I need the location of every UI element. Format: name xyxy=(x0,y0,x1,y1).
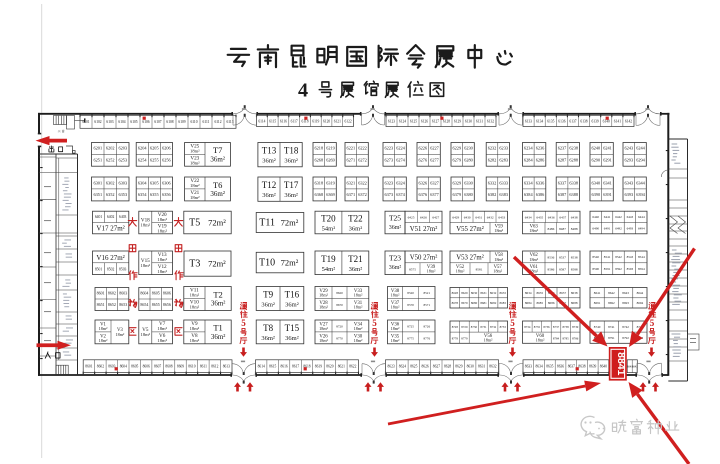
svg-text:72m²: 72m² xyxy=(281,258,299,268)
svg-text:6383: 6383 xyxy=(499,192,508,197)
svg-text:6139: 6139 xyxy=(592,119,599,123)
svg-text:6401: 6401 xyxy=(95,215,103,219)
svg-text:18m²: 18m² xyxy=(536,337,545,342)
svg-text:6134: 6134 xyxy=(536,119,543,123)
svg-text:8625: 8625 xyxy=(410,365,417,369)
svg-text:V50 27m²: V50 27m² xyxy=(410,255,438,262)
svg-text:18m²: 18m² xyxy=(354,305,363,310)
svg-text:8542: 8542 xyxy=(615,255,622,259)
svg-text:18m²: 18m² xyxy=(319,326,328,331)
svg-text:6368: 6368 xyxy=(315,192,324,197)
svg-text:36m²: 36m² xyxy=(210,156,225,164)
svg-text:8570: 8570 xyxy=(407,303,414,307)
svg-text:6334: 6334 xyxy=(524,180,533,185)
svg-text:6431: 6431 xyxy=(475,216,482,220)
svg-text:8653: 8653 xyxy=(119,302,127,307)
svg-text:6323: 6323 xyxy=(385,180,394,185)
svg-text:18m²: 18m² xyxy=(190,195,200,200)
svg-text:6251: 6251 xyxy=(94,158,103,163)
svg-text:T3: T3 xyxy=(189,259,200,270)
svg-text:18m²: 18m² xyxy=(529,228,538,233)
svg-text:6433: 6433 xyxy=(498,216,505,220)
svg-text:6229: 6229 xyxy=(453,146,462,151)
svg-text:8609: 8609 xyxy=(177,365,184,369)
svg-text:6444: 6444 xyxy=(638,215,645,219)
svg-text:6432: 6432 xyxy=(487,216,494,220)
svg-text:8735: 8735 xyxy=(534,325,541,329)
svg-text:6303: 6303 xyxy=(119,180,128,185)
svg-text:8638: 8638 xyxy=(578,365,585,369)
svg-text:18m²: 18m² xyxy=(391,326,400,331)
svg-text:6115: 6115 xyxy=(269,119,276,123)
svg-text:6490: 6490 xyxy=(592,226,599,230)
svg-text:T2: T2 xyxy=(213,289,222,299)
svg-text:6117: 6117 xyxy=(291,119,298,123)
svg-text:6283: 6283 xyxy=(499,158,508,163)
svg-text:18m²: 18m² xyxy=(157,269,167,274)
svg-text:54m²: 54m² xyxy=(322,266,336,273)
svg-text:6124: 6124 xyxy=(399,119,406,123)
svg-text:6123: 6123 xyxy=(388,119,395,123)
svg-text:6111: 6111 xyxy=(203,120,210,124)
svg-text:8630: 8630 xyxy=(471,291,478,295)
svg-text:6369: 6369 xyxy=(326,192,335,197)
svg-text:6116: 6116 xyxy=(280,119,287,123)
svg-text:6356: 6356 xyxy=(162,192,171,197)
svg-text:6443: 6443 xyxy=(627,215,634,219)
svg-text:6286: 6286 xyxy=(536,158,545,163)
svg-text:6353: 6353 xyxy=(119,192,128,197)
svg-text:8737: 8737 xyxy=(553,325,560,329)
svg-text:8607: 8607 xyxy=(154,365,161,369)
svg-text:8620: 8620 xyxy=(326,365,333,369)
svg-text:36m²: 36m² xyxy=(262,192,276,199)
svg-text:6282: 6282 xyxy=(488,158,497,163)
svg-text:6280: 6280 xyxy=(464,158,473,163)
svg-text:18m²: 18m² xyxy=(190,183,200,188)
svg-text:T7: T7 xyxy=(213,145,222,155)
svg-text:8730: 8730 xyxy=(471,325,478,329)
svg-text:8640: 8640 xyxy=(600,365,607,369)
svg-text:6218: 6218 xyxy=(315,146,324,151)
svg-text:8637: 8637 xyxy=(560,291,567,295)
svg-text:6107: 6107 xyxy=(154,120,161,124)
svg-text:8629: 8629 xyxy=(455,365,462,369)
svg-text:T17: T17 xyxy=(284,180,299,190)
svg-text:6491: 6491 xyxy=(604,226,611,230)
svg-text:72m²: 72m² xyxy=(208,218,226,228)
svg-text:8616: 8616 xyxy=(281,365,288,369)
svg-text:8632: 8632 xyxy=(489,365,496,369)
svg-text:6304: 6304 xyxy=(138,180,147,185)
svg-text:6344: 6344 xyxy=(636,180,645,185)
svg-text:6205: 6205 xyxy=(150,146,159,151)
svg-text:8632: 8632 xyxy=(490,291,497,295)
svg-text:6110: 6110 xyxy=(190,120,197,124)
svg-text:6386: 6386 xyxy=(536,192,545,197)
svg-text:6272: 6272 xyxy=(358,158,367,163)
svg-text:36m²: 36m² xyxy=(284,158,298,165)
svg-text:8587: 8587 xyxy=(559,267,566,271)
svg-text:8590: 8590 xyxy=(592,267,599,271)
svg-text:18m²: 18m² xyxy=(190,305,200,310)
svg-text:6430: 6430 xyxy=(464,216,471,220)
svg-text:6222: 6222 xyxy=(358,146,367,151)
svg-text:6321: 6321 xyxy=(347,180,356,185)
svg-text:8770: 8770 xyxy=(336,337,343,341)
svg-text:36m²: 36m² xyxy=(284,192,298,199)
svg-text:8720: 8720 xyxy=(336,325,343,329)
svg-text:8741: 8741 xyxy=(608,325,615,329)
svg-text:8601: 8601 xyxy=(97,291,105,296)
svg-text:8683: 8683 xyxy=(500,301,507,305)
svg-text:6269: 6269 xyxy=(326,158,335,163)
svg-text:18m²: 18m² xyxy=(99,326,108,331)
svg-text:6287: 6287 xyxy=(558,158,567,163)
svg-text:8615: 8615 xyxy=(269,365,276,369)
svg-text:6403: 6403 xyxy=(119,215,127,219)
svg-text:18m²: 18m² xyxy=(427,268,436,273)
svg-text:6343: 6343 xyxy=(625,180,634,185)
svg-text:8606: 8606 xyxy=(143,365,150,369)
svg-text:8602: 8602 xyxy=(97,365,104,369)
svg-text:6494: 6494 xyxy=(638,226,645,230)
svg-text:6120: 6120 xyxy=(323,119,330,123)
svg-text:8544: 8544 xyxy=(638,255,645,259)
svg-text:6326: 6326 xyxy=(419,180,428,185)
svg-text:6333: 6333 xyxy=(499,180,508,185)
svg-text:6388: 6388 xyxy=(569,192,578,197)
svg-text:18m²: 18m² xyxy=(157,338,167,343)
svg-text:6318: 6318 xyxy=(315,180,324,185)
svg-text:8685: 8685 xyxy=(537,301,544,305)
svg-text:8655: 8655 xyxy=(152,302,160,307)
svg-text:18m²: 18m² xyxy=(190,338,200,343)
svg-text:18m²: 18m² xyxy=(391,338,400,343)
svg-text:6105: 6105 xyxy=(130,120,137,124)
svg-text:6109: 6109 xyxy=(178,120,185,124)
svg-text:6108: 6108 xyxy=(166,120,173,124)
svg-text:8692: 8692 xyxy=(608,301,615,305)
svg-text:8628: 8628 xyxy=(452,291,459,295)
svg-text:6425: 6425 xyxy=(408,216,415,220)
svg-text:6341: 6341 xyxy=(603,180,612,185)
svg-text:8670: 8670 xyxy=(336,303,343,307)
svg-text:T20: T20 xyxy=(321,214,336,224)
svg-text:8486: 8486 xyxy=(548,227,555,231)
svg-text:8603: 8603 xyxy=(119,291,127,296)
svg-text:6268: 6268 xyxy=(315,158,324,163)
svg-text:8694: 8694 xyxy=(637,301,644,305)
svg-text:36m²: 36m² xyxy=(261,302,275,309)
svg-text:36m²: 36m² xyxy=(349,226,363,233)
svg-text:6203: 6203 xyxy=(119,146,128,151)
svg-text:6387: 6387 xyxy=(558,192,567,197)
svg-text:6253: 6253 xyxy=(119,158,128,163)
svg-text:8604: 8604 xyxy=(140,291,148,296)
svg-text:6377: 6377 xyxy=(430,192,439,197)
svg-text:6290: 6290 xyxy=(592,158,601,163)
svg-text:8651: 8651 xyxy=(97,302,105,307)
svg-text:54m²: 54m² xyxy=(322,226,336,233)
svg-text:8635: 8635 xyxy=(537,291,544,295)
svg-text:6327: 6327 xyxy=(430,180,439,185)
svg-text:8740: 8740 xyxy=(594,325,601,329)
svg-text:18m²: 18m² xyxy=(190,149,200,154)
svg-text:6436: 6436 xyxy=(548,216,555,220)
svg-text:6438: 6438 xyxy=(571,216,578,220)
svg-text:8684: 8684 xyxy=(525,301,532,305)
svg-text:T15: T15 xyxy=(285,323,300,333)
svg-text:8622: 8622 xyxy=(349,365,356,369)
svg-text:8634: 8634 xyxy=(525,291,532,295)
svg-text:T18: T18 xyxy=(284,146,299,156)
svg-text:18m²: 18m² xyxy=(157,326,167,331)
svg-text:6374: 6374 xyxy=(396,192,405,197)
svg-text:6118: 6118 xyxy=(301,119,308,123)
svg-text:6114: 6114 xyxy=(258,119,265,123)
svg-text:36m²: 36m² xyxy=(389,265,402,271)
svg-text:6293: 6293 xyxy=(625,158,634,163)
svg-text:8786: 8786 xyxy=(572,337,579,341)
svg-text:36m²: 36m² xyxy=(261,335,275,342)
svg-text:8620: 8620 xyxy=(336,291,343,295)
svg-text:6427: 6427 xyxy=(432,216,439,220)
svg-text:6102: 6102 xyxy=(94,120,101,124)
svg-text:8608: 8608 xyxy=(165,365,172,369)
svg-text:5: 5 xyxy=(510,318,515,328)
svg-text:8775: 8775 xyxy=(407,337,414,341)
svg-text:6121: 6121 xyxy=(334,119,341,123)
svg-text:36m²: 36m² xyxy=(210,190,225,198)
svg-text:6382: 6382 xyxy=(488,192,497,197)
svg-text:6284: 6284 xyxy=(524,158,533,163)
svg-text:8776: 8776 xyxy=(424,337,431,341)
svg-text:8637: 8637 xyxy=(568,365,575,369)
svg-text:6256: 6256 xyxy=(162,158,171,163)
svg-text:18m²: 18m² xyxy=(157,228,167,233)
svg-text:18m²: 18m² xyxy=(141,332,151,337)
svg-text:18m²: 18m² xyxy=(354,326,363,331)
svg-text:8633: 8633 xyxy=(500,291,507,295)
svg-text:6241: 6241 xyxy=(603,146,612,151)
svg-text:6440: 6440 xyxy=(592,215,599,219)
svg-text:6237: 6237 xyxy=(558,146,567,151)
svg-text:5: 5 xyxy=(650,318,655,328)
svg-text:6393: 6393 xyxy=(625,192,634,197)
svg-text:6141: 6141 xyxy=(614,119,621,123)
svg-text:6288: 6288 xyxy=(569,158,578,163)
svg-text:8628: 8628 xyxy=(444,365,451,369)
svg-text:6319: 6319 xyxy=(326,180,335,185)
svg-text:18m²: 18m² xyxy=(99,338,108,343)
svg-text:6113: 6113 xyxy=(226,120,233,124)
svg-text:6372: 6372 xyxy=(358,192,367,197)
svg-text:V16 27m²: V16 27m² xyxy=(96,254,124,262)
svg-text:8605: 8605 xyxy=(131,365,138,369)
svg-text:6126: 6126 xyxy=(421,119,428,123)
svg-text:8634: 8634 xyxy=(536,365,543,369)
svg-text:8729: 8729 xyxy=(461,325,468,329)
svg-text:6351: 6351 xyxy=(94,192,103,197)
svg-text:8725: 8725 xyxy=(407,325,414,329)
svg-text:36m²: 36m² xyxy=(389,225,402,231)
svg-text:8791: 8791 xyxy=(608,336,615,340)
svg-text:8728: 8728 xyxy=(452,325,459,329)
svg-text:6355: 6355 xyxy=(150,192,159,197)
svg-text:18m²: 18m² xyxy=(391,293,400,298)
svg-text:T5: T5 xyxy=(189,218,200,229)
svg-text:6112: 6112 xyxy=(214,120,221,124)
svg-text:T25: T25 xyxy=(389,214,401,223)
svg-text:18m²: 18m² xyxy=(319,338,328,343)
svg-text:6138: 6138 xyxy=(580,119,587,123)
svg-text:8604: 8604 xyxy=(120,365,127,369)
svg-text:18m²: 18m² xyxy=(141,263,151,268)
svg-text:6373: 6373 xyxy=(385,192,394,197)
svg-text:8778: 8778 xyxy=(452,337,459,341)
svg-text:8487: 8487 xyxy=(559,227,566,231)
svg-text:6224: 6224 xyxy=(396,146,405,151)
svg-text:6243: 6243 xyxy=(625,146,634,151)
svg-text:6426: 6426 xyxy=(420,216,427,220)
svg-text:8613: 8613 xyxy=(223,365,230,369)
svg-text:8603: 8603 xyxy=(108,365,115,369)
svg-text:8502: 8502 xyxy=(107,267,115,271)
svg-text:8619: 8619 xyxy=(315,365,322,369)
svg-text:8631: 8631 xyxy=(478,365,485,369)
svg-text:8521: 8521 xyxy=(424,291,431,295)
svg-text:18m²: 18m² xyxy=(141,223,151,228)
svg-text:8592: 8592 xyxy=(615,267,622,271)
svg-text:6493: 6493 xyxy=(627,226,634,230)
svg-text:8621: 8621 xyxy=(338,365,345,369)
svg-text:6294: 6294 xyxy=(636,158,645,163)
svg-text:6230: 6230 xyxy=(464,146,473,151)
svg-text:T19: T19 xyxy=(321,254,336,264)
svg-text:8681: 8681 xyxy=(480,301,487,305)
svg-text:18m²: 18m² xyxy=(157,217,167,222)
svg-text:6202: 6202 xyxy=(106,146,115,151)
svg-text:T8: T8 xyxy=(263,323,273,333)
svg-text:6104: 6104 xyxy=(118,120,125,124)
svg-text:6103: 6103 xyxy=(106,120,113,124)
svg-text:6135: 6135 xyxy=(547,119,554,123)
svg-text:T22: T22 xyxy=(348,214,363,224)
svg-text:8594: 8594 xyxy=(638,267,645,271)
svg-text:8543: 8543 xyxy=(627,255,634,259)
svg-text:6232: 6232 xyxy=(488,146,497,151)
svg-text:V17 27m²: V17 27m² xyxy=(96,225,124,233)
svg-text:8536: 8536 xyxy=(548,256,555,260)
svg-text:T6: T6 xyxy=(213,180,222,190)
svg-text:6291: 6291 xyxy=(603,158,612,163)
svg-text:6434: 6434 xyxy=(525,216,532,220)
svg-text:8738: 8738 xyxy=(563,325,570,329)
svg-text:6338: 6338 xyxy=(569,180,578,185)
svg-text:8784: 8784 xyxy=(553,337,560,341)
svg-text:6133: 6133 xyxy=(525,119,532,123)
svg-text:18m²: 18m² xyxy=(319,293,328,298)
svg-text:8636: 8636 xyxy=(557,365,564,369)
svg-text:18m²: 18m² xyxy=(190,326,200,331)
svg-text:6277: 6277 xyxy=(430,158,439,163)
svg-text:18m²: 18m² xyxy=(190,293,200,298)
svg-text:8501: 8501 xyxy=(95,267,103,271)
svg-text:18m²: 18m² xyxy=(529,257,538,262)
svg-text:18m²: 18m² xyxy=(157,257,167,262)
svg-text:36m²: 36m² xyxy=(211,333,226,341)
svg-text:8488: 8488 xyxy=(571,227,578,231)
svg-text:8654: 8654 xyxy=(140,302,148,307)
svg-text:8591: 8591 xyxy=(604,267,611,271)
svg-text:8691: 8691 xyxy=(594,301,601,305)
svg-text:6227: 6227 xyxy=(430,146,439,151)
svg-text:6233: 6233 xyxy=(499,146,508,151)
svg-text:6238: 6238 xyxy=(569,146,578,151)
svg-text:T23: T23 xyxy=(389,254,401,263)
svg-text:8678: 8678 xyxy=(452,301,459,305)
svg-text:8593: 8593 xyxy=(627,267,634,271)
svg-text:6244: 6244 xyxy=(636,146,645,151)
svg-text:8541: 8541 xyxy=(604,255,611,259)
svg-text:6106: 6106 xyxy=(142,120,149,124)
svg-text:V53 27m²: V53 27m² xyxy=(456,255,484,262)
svg-text:8739: 8739 xyxy=(572,325,579,329)
svg-text:T16: T16 xyxy=(285,290,300,300)
svg-text:8624: 8624 xyxy=(399,365,406,369)
svg-text:18m²: 18m² xyxy=(493,268,502,273)
svg-text:8606: 8606 xyxy=(163,291,171,296)
svg-text:8588: 8588 xyxy=(571,267,578,271)
svg-text:18m²: 18m² xyxy=(354,338,363,343)
svg-text:6127: 6127 xyxy=(432,119,439,123)
svg-text:8643: 8643 xyxy=(622,291,629,295)
svg-text:8629: 8629 xyxy=(461,291,468,295)
svg-text:6354: 6354 xyxy=(138,192,147,197)
svg-text:8627: 8627 xyxy=(433,365,440,369)
svg-text:6136: 6136 xyxy=(558,119,565,123)
svg-text:6391: 6391 xyxy=(603,192,612,197)
svg-text:8631: 8631 xyxy=(480,291,487,295)
svg-text:18m²: 18m² xyxy=(391,305,400,310)
svg-text:8633: 8633 xyxy=(525,365,532,369)
svg-text:18m²: 18m² xyxy=(494,228,503,233)
svg-text:T13: T13 xyxy=(262,146,277,156)
svg-text:6441: 6441 xyxy=(604,215,611,219)
svg-text:8538: 8538 xyxy=(571,256,578,260)
svg-text:8586: 8586 xyxy=(548,267,555,271)
svg-text:72m²: 72m² xyxy=(281,218,299,228)
svg-text:6302: 6302 xyxy=(106,180,115,185)
svg-text:6352: 6352 xyxy=(106,192,115,197)
svg-text:6274: 6274 xyxy=(396,158,405,163)
svg-text:8642: 8642 xyxy=(608,291,615,295)
svg-text:6223: 6223 xyxy=(385,146,394,151)
svg-text:6140: 6140 xyxy=(603,119,610,123)
svg-text:8644: 8644 xyxy=(637,291,644,295)
svg-text:8656: 8656 xyxy=(163,302,171,307)
svg-text:8731: 8731 xyxy=(480,325,487,329)
svg-text:8732: 8732 xyxy=(490,325,497,329)
svg-text:T1: T1 xyxy=(213,323,222,333)
svg-text:6336: 6336 xyxy=(536,180,545,185)
svg-text:8617: 8617 xyxy=(292,365,299,369)
svg-text:36m²: 36m² xyxy=(262,158,276,165)
svg-text:36m²: 36m² xyxy=(349,266,363,273)
svg-text:18m²: 18m² xyxy=(494,257,503,262)
svg-text:6276: 6276 xyxy=(419,158,428,163)
